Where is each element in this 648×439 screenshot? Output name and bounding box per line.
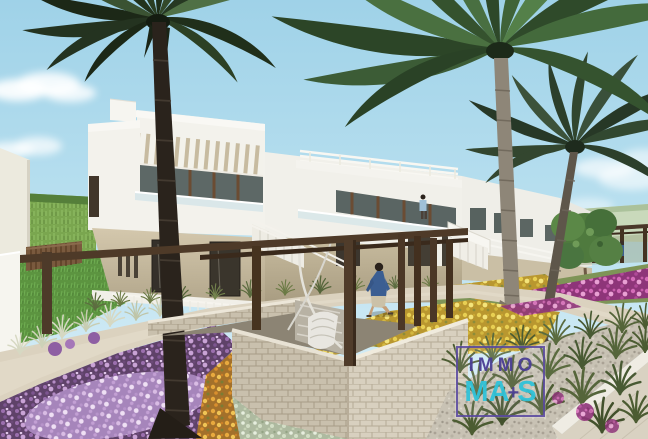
render-scene <box>0 0 648 439</box>
pink-flower-clump <box>605 419 619 433</box>
brand-name-bottom: MA+S <box>464 378 536 407</box>
brand-watermark: IMMO MA+S <box>456 346 545 417</box>
brand-ma: MA <box>464 378 509 407</box>
plus-icon: + <box>508 383 520 403</box>
brand-s: S <box>517 378 536 407</box>
pink-flower-clump <box>552 392 564 404</box>
pink-flower-clump <box>576 403 594 421</box>
property-render-image: IMMO MA+S <box>0 0 648 439</box>
brand-name-top: IMMO <box>469 356 537 375</box>
side-slot-window <box>89 176 99 217</box>
